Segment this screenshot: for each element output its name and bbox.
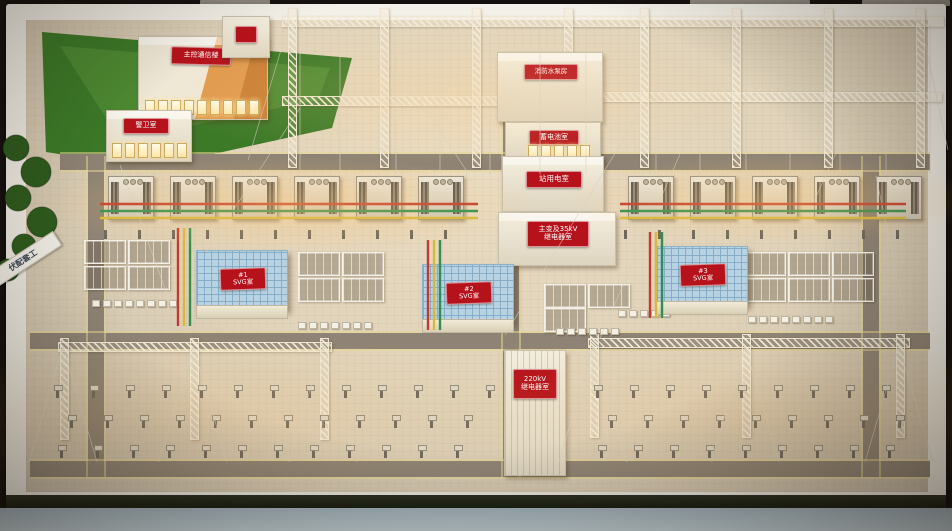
- drop-wire: [559, 346, 593, 462]
- guy-wire: [206, 108, 300, 252]
- drop-wire: [159, 346, 193, 462]
- drop-wire: [711, 346, 745, 462]
- guy-wire: [248, 20, 290, 160]
- drop-wire: [29, 346, 63, 462]
- drop-wire: [745, 346, 779, 462]
- guy-wire: [920, 20, 948, 150]
- wires-svg: [0, 0, 952, 531]
- drop-wire: [593, 346, 627, 462]
- guy-wire: [420, 100, 466, 170]
- drop-wire: [289, 346, 323, 462]
- drop-wire: [899, 346, 933, 462]
- guy-wire: [792, 100, 860, 250]
- drop-wire: [323, 346, 357, 462]
- drop-wire: [193, 346, 227, 462]
- guy-wire: [505, 112, 640, 335]
- drop-wire: [63, 346, 97, 462]
- guy-wire: [876, 176, 908, 330]
- guy-wire: [120, 165, 180, 330]
- drop-wire: [865, 346, 899, 462]
- model-photo: 主控通信楼 警卫室 消防水泵房 蓄电池室 站用电室 主变及35kV 继电器室 #…: [0, 0, 952, 531]
